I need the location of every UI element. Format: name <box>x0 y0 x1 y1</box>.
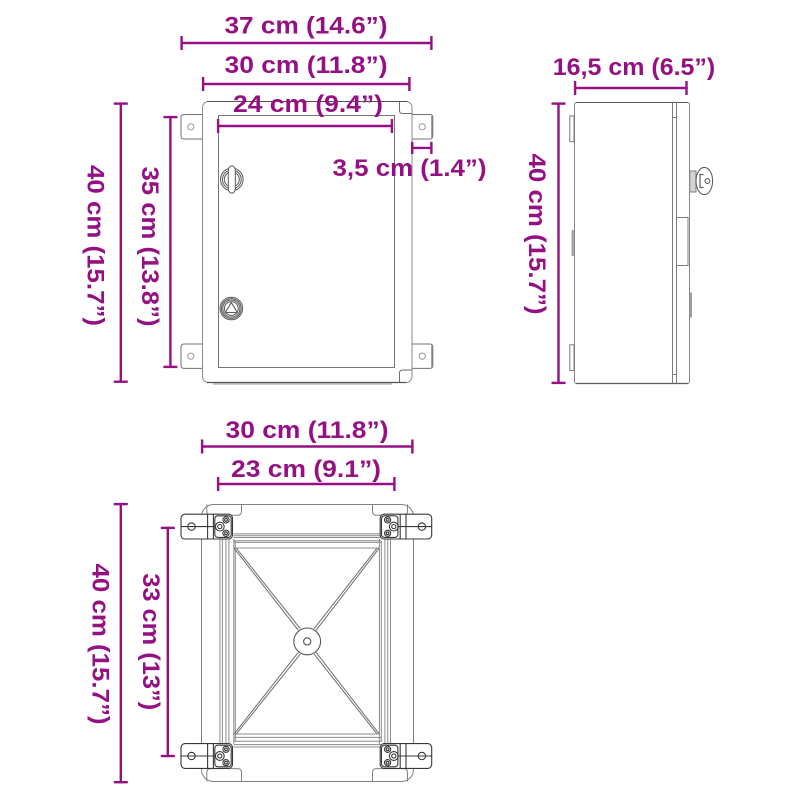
svg-text:40 cm (15.7”): 40 cm (15.7”) <box>82 165 109 326</box>
svg-text:33 cm (13”): 33 cm (13”) <box>137 573 164 710</box>
svg-text:37 cm (14.6”): 37 cm (14.6”) <box>225 13 388 40</box>
svg-text:40 cm (15.7”): 40 cm (15.7”) <box>87 564 114 725</box>
svg-text:40 cm (15.7”): 40 cm (15.7”) <box>523 154 550 315</box>
svg-text:35 cm (13.8”): 35 cm (13.8”) <box>136 167 163 327</box>
svg-text:24 cm (9.4”): 24 cm (9.4”) <box>233 91 383 118</box>
svg-text:30 cm (11.8”): 30 cm (11.8”) <box>225 52 388 79</box>
svg-text:23 cm (9.1”): 23 cm (9.1”) <box>231 456 381 483</box>
svg-text:16,5 cm (6.5”): 16,5 cm (6.5”) <box>553 54 716 81</box>
svg-text:3,5 cm (1.4”): 3,5 cm (1.4”) <box>333 155 487 182</box>
svg-text:30 cm (11.8”): 30 cm (11.8”) <box>226 417 389 444</box>
